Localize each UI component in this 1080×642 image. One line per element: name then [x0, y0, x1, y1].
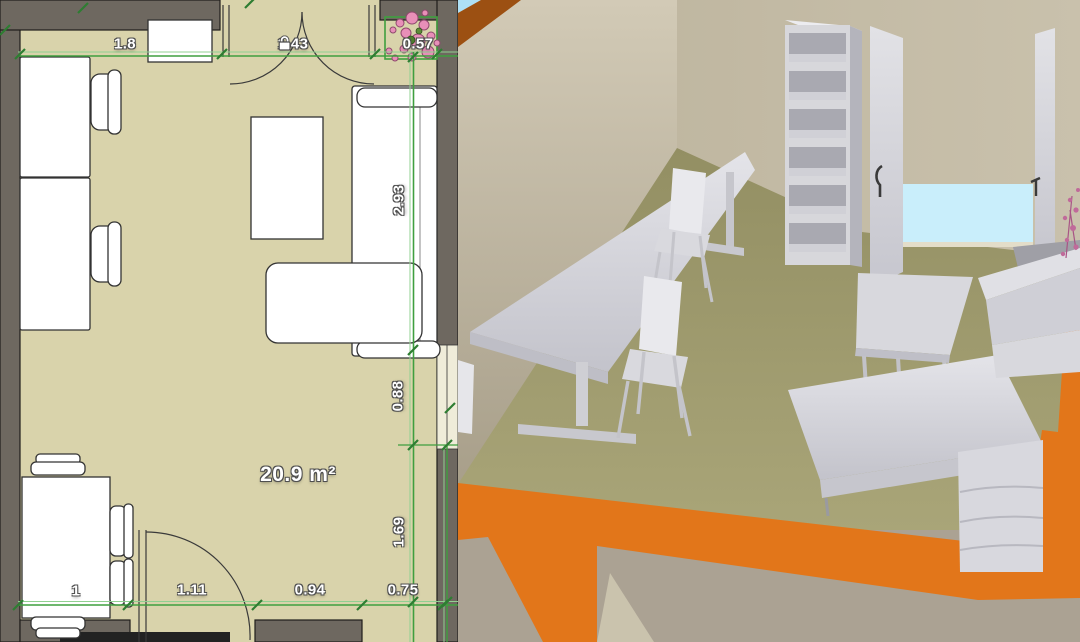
coffee-table[interactable]	[251, 117, 323, 239]
view-3d[interactable]	[458, 0, 1080, 642]
dim-label-bottom-2[interactable]: 1.11	[177, 582, 207, 599]
desk-2[interactable]	[20, 178, 90, 330]
dim-label-right-3[interactable]: 1.69	[391, 517, 408, 548]
doorway-sill	[895, 242, 1033, 247]
wall-below-room[interactable]	[60, 632, 230, 642]
wall-left[interactable]	[0, 0, 20, 642]
doorway-glass	[895, 184, 1033, 244]
chair-edge-partial[interactable]	[458, 360, 474, 434]
window-right[interactable]	[437, 345, 458, 449]
desk-chair-2[interactable]	[91, 222, 121, 286]
wall-bottom-b[interactable]	[255, 620, 362, 642]
room-area-label: 20.9 m²	[260, 463, 336, 487]
dim-label-top-3[interactable]: 0.57	[403, 36, 434, 53]
bookshelf-3d[interactable]	[785, 20, 862, 267]
dim-label-bottom-3[interactable]: 0.94	[295, 582, 326, 599]
floorplan-app-window: 1.8 1.43 0.57 2.93 0.88 1.69 1 1.11 0.94…	[0, 0, 1080, 642]
dim-label-top-1[interactable]: 1.8	[114, 36, 136, 53]
bed[interactable]	[266, 263, 422, 343]
dim-label-right-1[interactable]: 2.93	[391, 185, 408, 216]
desk-1[interactable]	[20, 57, 90, 177]
desk-chair-1[interactable]	[91, 70, 121, 134]
dim-label-right-2[interactable]: 0.88	[390, 381, 407, 412]
dim-label-bottom-1[interactable]: 1	[72, 583, 81, 600]
door-left-leaf-3d[interactable]	[870, 26, 903, 287]
dim-label-top-2[interactable]: 1.43	[278, 36, 309, 53]
lock-icon	[278, 36, 292, 52]
plan-2d-view[interactable]: 1.8 1.43 0.57 2.93 0.88 1.69 1 1.11 0.94…	[0, 0, 458, 642]
dim-label-bottom-4[interactable]: 0.75	[388, 582, 419, 599]
